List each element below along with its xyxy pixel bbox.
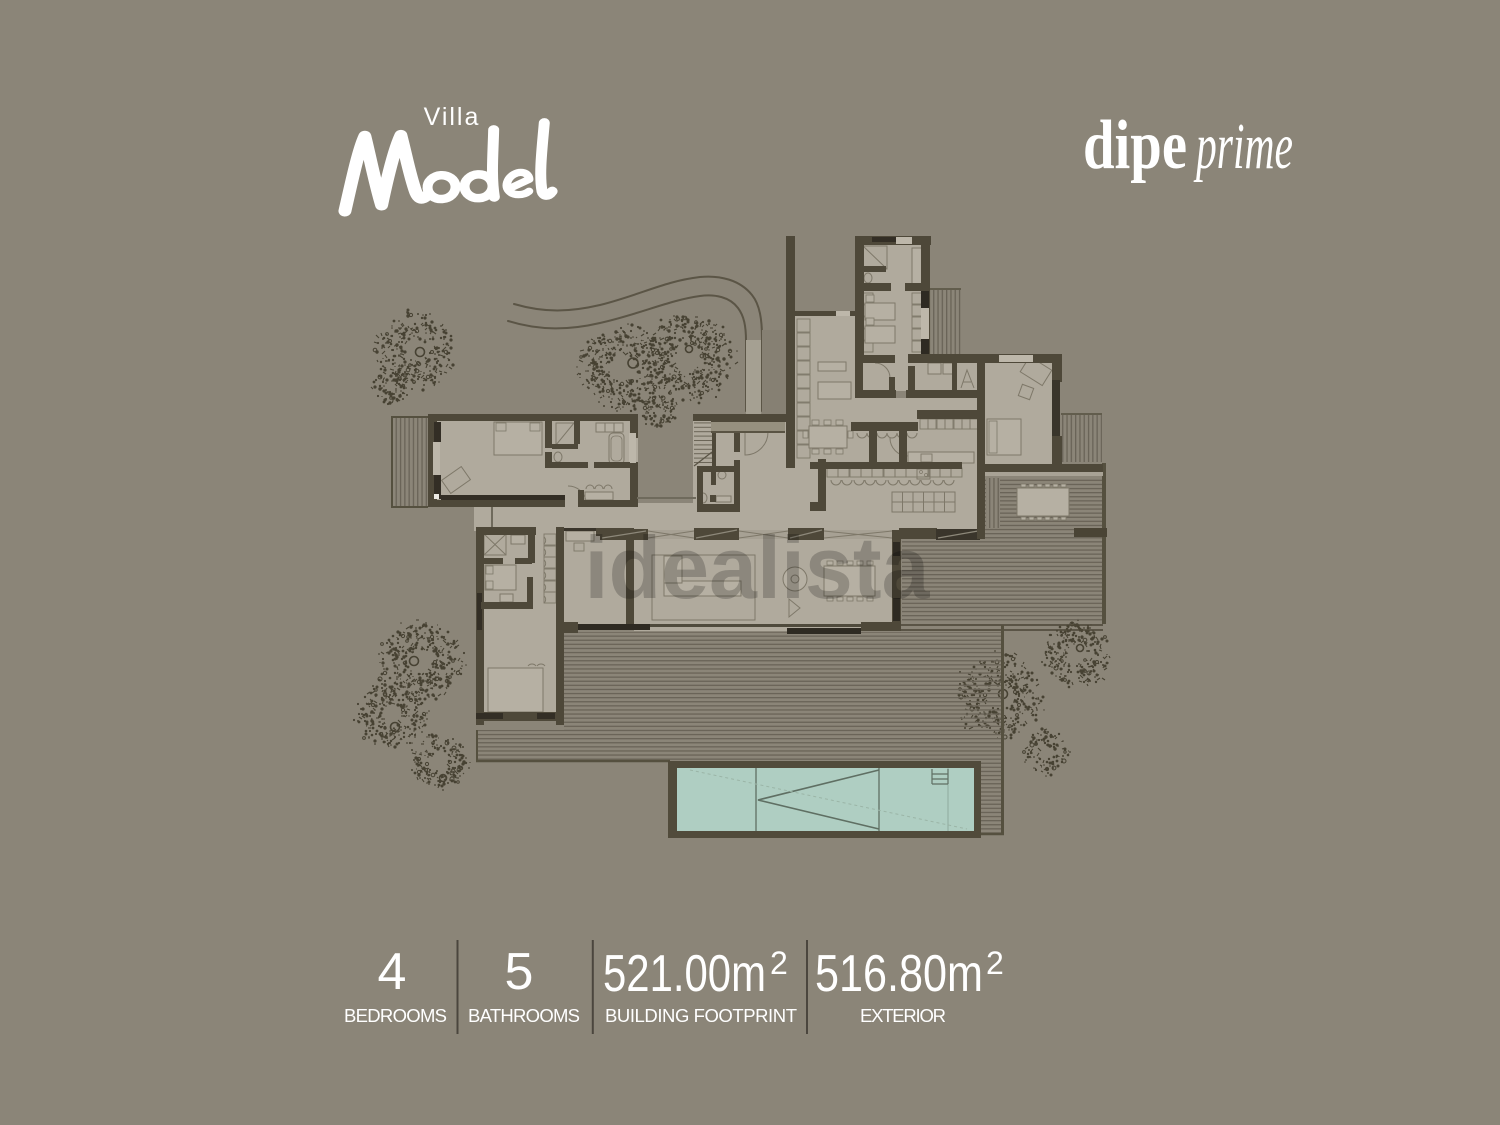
svg-text:Villa: Villa xyxy=(424,103,481,131)
svg-text:dipe: dipe xyxy=(1083,107,1187,184)
svg-text:EXTERIOR: EXTERIOR xyxy=(860,1005,946,1026)
svg-text:4: 4 xyxy=(378,943,407,1001)
svg-text:prime: prime xyxy=(1193,110,1293,183)
svg-text:idealista: idealista xyxy=(585,518,931,617)
svg-text:2: 2 xyxy=(986,945,1004,981)
svg-text:BEDROOMS: BEDROOMS xyxy=(344,1005,447,1026)
svg-text:516.80m: 516.80m xyxy=(815,945,983,1003)
svg-text:5: 5 xyxy=(505,943,534,1001)
svg-text:521.00m: 521.00m xyxy=(603,945,766,1003)
svg-text:2: 2 xyxy=(770,945,788,981)
svg-text:BUILDING FOOTPRINT: BUILDING FOOTPRINT xyxy=(605,1005,797,1026)
svg-text:BATHROOMS: BATHROOMS xyxy=(468,1005,580,1026)
